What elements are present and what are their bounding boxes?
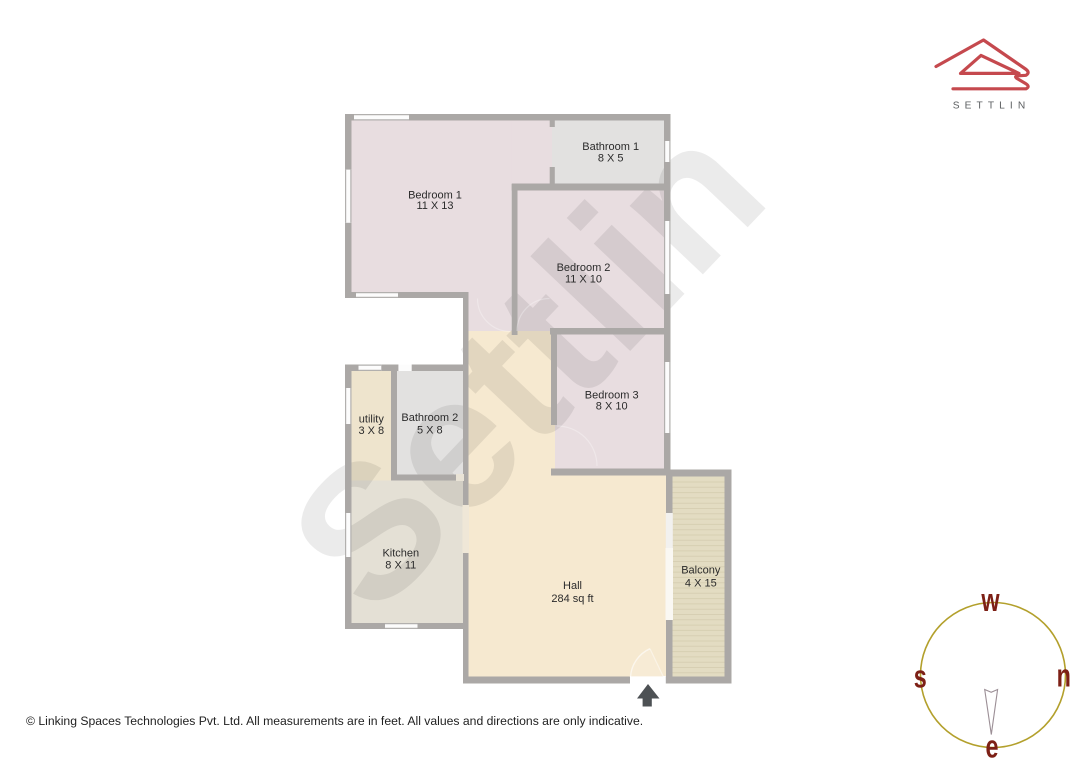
svg-text:n: n <box>1057 658 1071 693</box>
svg-text:11 X 13: 11 X 13 <box>416 200 453 212</box>
svg-text:Bathroom 1: Bathroom 1 <box>582 141 639 153</box>
svg-text:5 X 8: 5 X 8 <box>417 425 443 437</box>
svg-text:Bedroom 2: Bedroom 2 <box>557 262 611 274</box>
svg-text:Hall: Hall <box>563 580 582 592</box>
svg-text:© Linking Spaces Technologies: © Linking Spaces Technologies Pvt. Ltd. … <box>26 714 643 728</box>
svg-text:8 X 11: 8 X 11 <box>385 560 416 572</box>
svg-text:284 sq ft: 284 sq ft <box>551 593 593 605</box>
svg-text:e: e <box>986 729 999 764</box>
svg-text:4 X 15: 4 X 15 <box>685 577 717 589</box>
svg-text:Kitchen: Kitchen <box>382 547 419 559</box>
svg-text:11 X 10: 11 X 10 <box>565 274 602 286</box>
svg-text:Bathroom 2: Bathroom 2 <box>401 412 458 424</box>
svg-text:SETTLIN: SETTLIN <box>953 101 1031 112</box>
svg-text:w: w <box>981 582 1000 617</box>
svg-text:Balcony: Balcony <box>681 565 721 577</box>
svg-text:8 X 10: 8 X 10 <box>596 401 628 413</box>
svg-text:8 X 5: 8 X 5 <box>598 153 624 165</box>
svg-text:3 X 8: 3 X 8 <box>358 425 384 437</box>
svg-text:utility: utility <box>359 413 385 425</box>
svg-text:s: s <box>914 659 927 694</box>
